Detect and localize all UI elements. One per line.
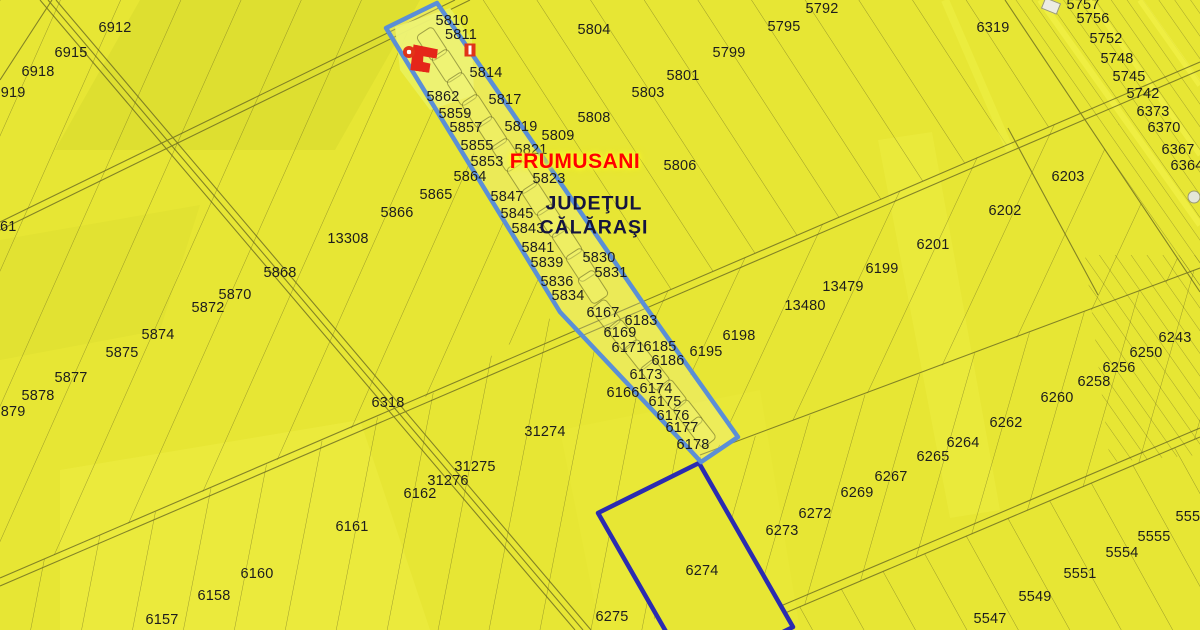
county-label-line1: JUDEŢUL	[540, 192, 649, 216]
parcel-label-6274: 6274	[685, 564, 718, 579]
parcel-label-5801: 5801	[666, 69, 699, 84]
parcel-label-6157: 6157	[145, 613, 178, 628]
parcel-label-6198: 6198	[722, 329, 755, 344]
parcel-label-5872: 5872	[191, 301, 224, 316]
parcel-label-5745: 5745	[1112, 70, 1145, 85]
parcel-label-5830: 5830	[582, 251, 615, 266]
parcel-label-6912: 6912	[98, 21, 131, 36]
parcel-label-6177: 6177	[665, 421, 698, 436]
parcel-label-6269: 6269	[840, 486, 873, 501]
parcel-label-5868: 5868	[263, 266, 296, 281]
parcel-label-6171: 6171	[611, 341, 644, 356]
parcel-label-5857: 5857	[449, 121, 482, 136]
parcel-label-5831: 5831	[594, 266, 627, 281]
parcel-label-6203: 6203	[1051, 170, 1084, 185]
parcel-label-6178: 6178	[676, 438, 709, 453]
parcel-label-5808: 5808	[577, 111, 610, 126]
map-canvas: 6912691569186919586158661330858685870587…	[0, 0, 1200, 630]
parcel-label-6265: 6265	[916, 450, 949, 465]
parcel-label-5875: 5875	[105, 346, 138, 361]
parcel-label-6260: 6260	[1040, 391, 1073, 406]
parcel-label-5556: 5556	[1175, 510, 1200, 525]
parcel-label-5806: 5806	[663, 159, 696, 174]
parcel-label-6370: 6370	[1147, 121, 1180, 136]
parcel-label-6166: 6166	[606, 386, 639, 401]
parcel-label-5861: 5861	[0, 220, 17, 235]
parcel-label-6275: 6275	[595, 610, 628, 625]
parcel-label-6258: 6258	[1077, 375, 1110, 390]
parcel-label-6162: 6162	[403, 487, 436, 502]
parcel-label-5817: 5817	[488, 93, 521, 108]
parcel-label-13479: 13479	[822, 280, 863, 295]
parcel-label-13480: 13480	[784, 299, 825, 314]
parcel-label-13308: 13308	[327, 232, 368, 247]
parcel-label-5554: 5554	[1105, 546, 1138, 561]
parcel-label-6243: 6243	[1158, 331, 1191, 346]
parcel-label-5866: 5866	[380, 206, 413, 221]
county-label: JUDEŢUL CĂLĂRAŞI	[540, 192, 649, 241]
parcel-label-5855: 5855	[460, 139, 493, 154]
place-name-label: FRUMUSANI	[510, 150, 641, 174]
parcel-label-5756: 5756	[1076, 12, 1109, 27]
parcel-label-6167: 6167	[586, 306, 619, 321]
parcel-label-5819: 5819	[504, 120, 537, 135]
parcel-label-5811: 5811	[445, 28, 477, 43]
parcel-label-5878: 5878	[21, 389, 54, 404]
parcel-label-6158: 6158	[197, 589, 230, 604]
parcel-label-5834: 5834	[551, 289, 584, 304]
parcel-label-6264: 6264	[946, 436, 979, 451]
parcel-label-5865: 5865	[419, 188, 452, 203]
parcel-label-5879: 5879	[0, 405, 26, 420]
parcel-label-6160: 6160	[240, 567, 273, 582]
parcel-label-5839: 5839	[530, 256, 563, 271]
parcel-label-5547: 5547	[973, 612, 1006, 627]
parcel-label-6318: 6318	[371, 396, 404, 411]
parcel-label-6250: 6250	[1129, 346, 1162, 361]
parcel-label-6267: 6267	[874, 470, 907, 485]
parcel-label-5795: 5795	[767, 20, 800, 35]
parcel-label-31274: 31274	[524, 425, 565, 440]
parcel-labels-layer: 6912691569186919586158661330858685870587…	[0, 0, 1200, 630]
parcel-label-6195: 6195	[689, 345, 722, 360]
parcel-label-5752: 5752	[1089, 32, 1122, 47]
parcel-label-6272: 6272	[798, 507, 831, 522]
parcel-label-5864: 5864	[453, 170, 486, 185]
parcel-label-6364: 6364	[1170, 159, 1200, 174]
parcel-label-6367: 6367	[1161, 143, 1194, 158]
parcel-label-5549: 5549	[1018, 590, 1051, 605]
parcel-label-5874: 5874	[141, 328, 174, 343]
parcel-label-5845: 5845	[500, 207, 533, 222]
parcel-label-6918: 6918	[21, 65, 54, 80]
parcel-label-5551: 5551	[1063, 567, 1096, 582]
parcel-label-6273: 6273	[765, 524, 798, 539]
parcel-label-5792: 5792	[805, 2, 838, 17]
county-label-line2: CĂLĂRAŞI	[540, 216, 649, 240]
parcel-label-6373: 6373	[1136, 105, 1169, 120]
parcel-label-6319: 6319	[976, 21, 1009, 36]
parcel-label-5748: 5748	[1100, 52, 1133, 67]
parcel-label-5877: 5877	[54, 371, 87, 386]
parcel-label-5555: 5555	[1137, 530, 1170, 545]
parcel-label-5814: 5814	[469, 66, 502, 81]
parcel-label-5841: 5841	[521, 241, 554, 256]
parcel-label-5803: 5803	[631, 86, 664, 101]
parcel-label-5799: 5799	[712, 46, 745, 61]
parcel-label-6169: 6169	[603, 326, 636, 341]
parcel-label-6202: 6202	[988, 204, 1021, 219]
parcel-label-5853: 5853	[470, 155, 503, 170]
parcel-label-6262: 6262	[989, 416, 1022, 431]
parcel-label-6199: 6199	[865, 262, 898, 277]
parcel-label-5804: 5804	[577, 23, 610, 38]
parcel-label-5847: 5847	[490, 190, 523, 205]
parcel-label-5742: 5742	[1126, 87, 1159, 102]
parcel-label-6915: 6915	[54, 46, 87, 61]
parcel-label-6201: 6201	[916, 238, 949, 253]
parcel-label-6919: 6919	[0, 86, 26, 101]
parcel-label-5862: 5862	[426, 90, 459, 105]
parcel-label-6161: 6161	[335, 520, 368, 535]
